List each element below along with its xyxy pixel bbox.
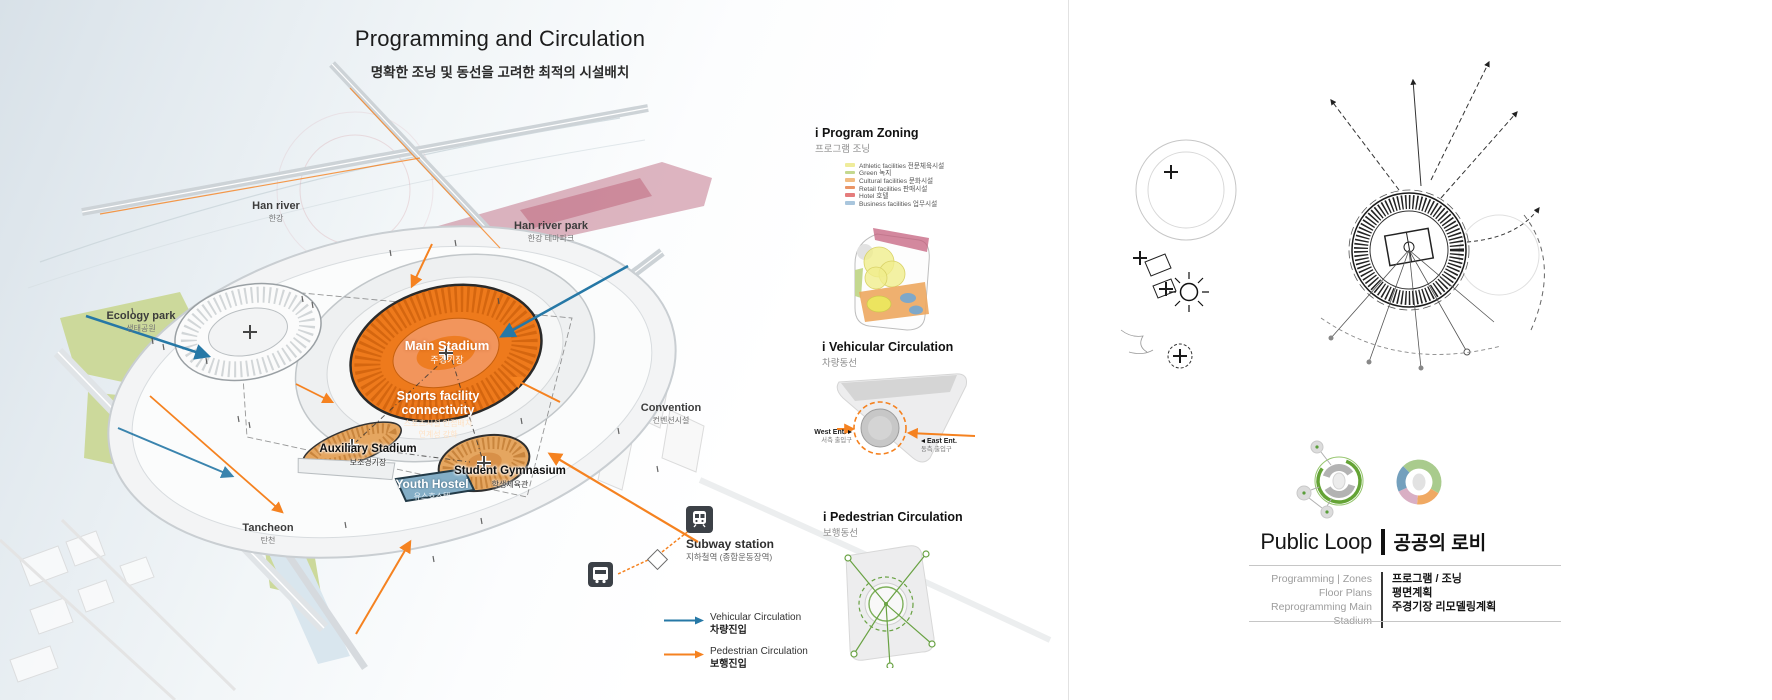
label-han-river-park: Han river park 한강 테마파크 xyxy=(514,220,588,244)
zoning-legend: Athletic facilities 전문체육시설 Green 녹지 Cult… xyxy=(845,161,944,207)
arrow-right-icon xyxy=(848,430,852,434)
blue-arrow-icon xyxy=(664,616,704,625)
label-student-gymnasium: Student Gymnasium 학생체육관 xyxy=(454,465,566,489)
label-han-river: Han river 한강 xyxy=(252,200,300,224)
public-loop-en: Public Loop xyxy=(1249,529,1372,555)
right-board: Public Loop 공공의 로비 Programming | Zones 프… xyxy=(1069,0,1772,700)
label-tancheon: Tancheon 탄천 xyxy=(242,522,293,546)
public-loop-title: Public Loop 공공의 로비 xyxy=(1249,528,1579,555)
rule-top xyxy=(1249,565,1561,566)
label-convention: Convention 컨벤션시설 xyxy=(641,402,702,426)
rule-bottom xyxy=(1249,621,1561,622)
index-row: Floor Plans 평면계획 xyxy=(1249,586,1579,600)
legend-vehicular: Vehicular Circulation 차량진입 xyxy=(664,612,808,637)
bus-icon xyxy=(588,562,613,587)
legend-pedestrian: Pedestrian Circulation 보행진입 xyxy=(664,646,808,671)
circulation-legend: Vehicular Circulation 차량진입 Pedestrian Ci… xyxy=(664,612,808,680)
label-main-stadium: Main Stadium 주경기장 xyxy=(405,338,490,365)
label-subway-station: Subway station 지하철역 (종합운동장역) xyxy=(686,537,774,563)
left-board: Programming and Circulation 명확한 조닝 및 동선을… xyxy=(0,0,1070,700)
label-west-entrance: West Ent. 서측 출입구 xyxy=(810,428,852,445)
page-subtitle: 명확한 조닝 및 동선을 고려한 최적의 시설배치 xyxy=(300,61,700,81)
label-sports-connectivity: Sports facility connectivity 스포츠시설 인접배치 … xyxy=(379,390,497,440)
board-title-block: Programming and Circulation 명확한 조닝 및 동선을… xyxy=(300,26,700,81)
contents-index: Programming | Zones 프로그램 / 조닝 Floor Plan… xyxy=(1249,572,1579,628)
legend-item: Business facilities 업무시설 xyxy=(845,199,944,207)
section-program-zoning: i Program Zoning 프로그램 조닝 xyxy=(815,126,918,155)
index-row: Reprogramming Main Stadium 주경기장 리모델링계획 xyxy=(1249,600,1579,628)
page-title: Programming and Circulation xyxy=(300,26,700,52)
compass-node xyxy=(1169,272,1209,312)
train-icon xyxy=(686,506,713,533)
vehicular-circulation-minimap xyxy=(833,372,983,464)
title-divider-bar xyxy=(1381,529,1385,555)
public-loop-ko: 공공의 로비 xyxy=(1394,528,1487,555)
index-row: Programming | Zones 프로그램 / 조닝 xyxy=(1249,572,1579,586)
sketch-plus-marks xyxy=(1133,165,1187,363)
program-zoning-minimap xyxy=(845,220,937,336)
label-east-entrance: East Ent. 동측 출입구 xyxy=(921,437,957,454)
label-ecology-park: Ecology park 생태공원 xyxy=(106,310,175,334)
label-auxiliary-stadium: Auxiliary Stadium 보조경기장 xyxy=(319,443,416,467)
section-pedestrian-circulation: i Pedestrian Circulation 보행동선 xyxy=(823,510,963,539)
pedestrian-circulation-minimap xyxy=(838,542,942,668)
section-vehicular-circulation: i Vehicular Circulation 차량동선 xyxy=(822,340,953,369)
public-loop-diagram xyxy=(1297,441,1366,518)
arrow-left-icon xyxy=(921,439,925,443)
orange-arrow-icon xyxy=(664,650,704,659)
presentation-board: Programming and Circulation 명확한 조닝 및 동선을… xyxy=(0,0,1772,700)
